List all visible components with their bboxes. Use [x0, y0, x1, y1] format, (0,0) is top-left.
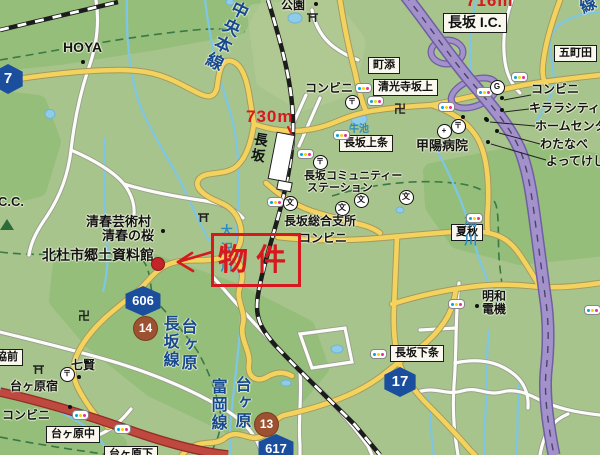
place-label: わたなべ [540, 138, 588, 151]
place-label: C.C. [0, 195, 24, 209]
property-annotation-label: 物件 [218, 244, 294, 277]
place-label: コンビニ [299, 232, 347, 245]
boxed-place-label: 協前 [0, 349, 23, 366]
place-label: 長坂コミュニティー [304, 170, 402, 182]
place-label: 電機 [482, 303, 506, 316]
boxed-place-label: 台ヶ原中 [46, 426, 100, 443]
boxed-place-label: 清光寺坂上 [373, 79, 438, 96]
post-office-icon: 〒 [345, 95, 360, 110]
place-label: 公園 [281, 0, 305, 12]
traffic-light-icon [367, 96, 384, 106]
place-label: 七賢 [71, 359, 95, 372]
boxed-place-label: 長坂下条 [390, 345, 444, 362]
map-canvas: 長坂 長坂 I.C.町添清光寺坂上五町田長坂上条夏秋長坂下条協前台ヶ原中台ヶ原下… [0, 0, 600, 455]
place-label: 長坂総合支所 [284, 215, 356, 228]
poi-dot [461, 115, 465, 119]
place-label: ホームセンタ [535, 120, 600, 133]
poi-dot [500, 96, 504, 100]
post-office-icon: 〒 [313, 155, 328, 170]
gas-station-icon: G [490, 80, 505, 95]
road-name-vertical: 富岡線 [208, 378, 226, 432]
property-annotation-box: 物件 [211, 233, 301, 287]
route-badge: 13 [254, 412, 279, 437]
poi-dot [500, 108, 504, 112]
traffic-light-icon [438, 102, 455, 112]
place-label: 甲陽病院 [416, 139, 468, 153]
traffic-light-icon [72, 410, 89, 420]
shrine-torii-icon [306, 10, 319, 28]
hospital-icon: + [437, 124, 452, 139]
place-label: 北杜市郷土資料館 [42, 248, 154, 263]
road-name-vertical: 長坂線 [160, 315, 178, 369]
traffic-light-icon [297, 149, 314, 159]
school-icon: 文 [354, 193, 369, 208]
mountain-icon [0, 219, 14, 230]
poi-dot [81, 60, 85, 64]
road-name-vertical: 台ヶ原 [178, 318, 196, 372]
place-label: コンビニ [2, 409, 50, 422]
traffic-light-icon [511, 72, 528, 82]
road-name-vertical: 台ヶ原 [232, 376, 250, 430]
pond-name: 牛池 [349, 124, 369, 135]
boxed-place-label: 町添 [368, 57, 400, 74]
school-icon: 文 [399, 190, 414, 205]
post-office-icon: 〒 [451, 119, 466, 134]
distance-label: 730m [246, 108, 293, 127]
route-badge: 14 [133, 316, 158, 341]
poi-dot [495, 129, 499, 133]
place-label: 清春の桜 [102, 229, 154, 243]
place-label: コンビニ [531, 83, 579, 96]
traffic-light-icon [114, 424, 131, 434]
place-label: コンビニ [305, 82, 353, 95]
school-icon: 文 [283, 196, 298, 211]
distance-label: 716m [466, 0, 513, 11]
traffic-light-icon [355, 83, 372, 93]
traffic-light-icon [448, 299, 465, 309]
post-office-icon: 〒 [60, 367, 75, 382]
shrine-torii-icon [32, 362, 45, 380]
boxed-place-label: 台ヶ原下 [104, 446, 158, 455]
shrine-torii-icon [197, 210, 210, 228]
poi-dot [161, 229, 165, 233]
traffic-light-icon [466, 213, 483, 223]
place-label: よってけし [546, 155, 600, 168]
boxed-place-label: 長坂 I.C. [443, 13, 507, 33]
traffic-light-icon [267, 197, 284, 207]
place-label: HOYA [63, 40, 102, 55]
place-label: 台ヶ原宿 [10, 380, 58, 393]
boxed-place-label: 五町田 [554, 45, 597, 62]
poi-dot [68, 405, 72, 409]
poi-dot [486, 140, 490, 144]
traffic-light-icon [333, 130, 350, 140]
property-marker-dot [151, 257, 165, 271]
temple-manji-icon: 卍 [78, 310, 90, 322]
poi-dot [475, 304, 479, 308]
poi-dot [484, 117, 488, 121]
traffic-light-icon [584, 305, 600, 315]
school-icon: 文 [335, 201, 350, 216]
poi-dot [77, 375, 81, 379]
temple-manji-icon: 卍 [394, 103, 406, 115]
traffic-light-icon [370, 349, 387, 359]
place-label: キララシティ [529, 102, 600, 115]
poi-dot [314, 2, 318, 6]
